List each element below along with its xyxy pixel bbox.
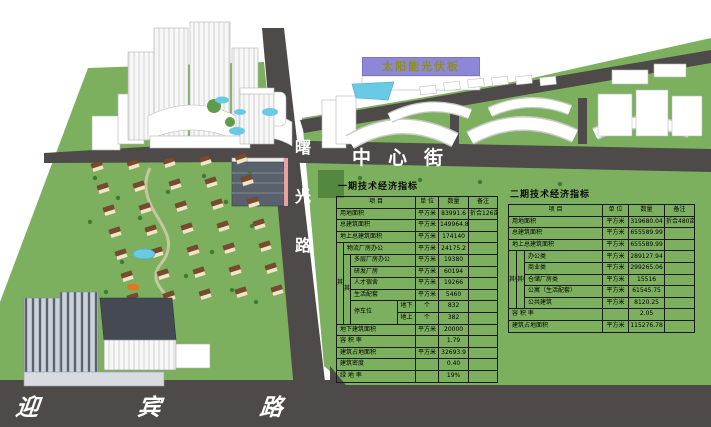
center-street-road-label: 中心街 [352,143,460,170]
indicator-cell [665,239,695,251]
indicator-cell: 2.05 [629,309,665,321]
indicator-cell [469,301,498,313]
indicator-cell: 32693.9 [439,347,469,359]
master-plan-screenshot: { "scene": { "labels": { "center_street"… [0,0,711,427]
indicator-cell: 备注 [665,205,695,217]
indicator-cell [469,347,498,359]
indicator-cell: 单 位 [416,197,439,209]
indicator-cell [469,278,498,290]
indicator-cell: 149964.8 [439,220,469,232]
indicator-cell: 项 目 [509,205,603,217]
indicator-cell [469,243,498,255]
indicator-cell [469,324,498,336]
indicator-cell: 平方米 [416,324,439,336]
indicator-cell: 地下 [398,301,416,313]
indicator-cell: 19380 [439,254,469,266]
indicator-cell: 地上 [398,312,416,324]
indicator-cell: 总建筑面积 [337,220,416,232]
indicator-cell: 平方米 [603,239,629,251]
glass-office-building [232,158,288,206]
indicator-cell [469,220,498,232]
indicator-cell: 其中 [517,251,525,309]
indicator-cell [469,359,498,371]
indicator-cell: 60194 [439,266,469,278]
indicator-cell: 用地面积 [509,216,603,228]
indicator-cell: 319680.04 [629,216,665,228]
indicator-cell: 19% [439,370,469,382]
indicator-cell: 物流厂房办公 [344,243,416,255]
indicator-cell: 24175.2 [439,243,469,255]
indicator-cell: 人才宿舍 [351,278,416,290]
indicator-cell: 单 位 [603,205,629,217]
indicator-cell: 平方米 [416,243,439,255]
indicator-cell: 研发厂房 [351,266,416,278]
indicator-cell [469,312,498,324]
indicator-cell: 平方米 [603,320,629,332]
indicator-cell: 建筑占地面积 [509,320,603,332]
indicator-cell [469,254,498,266]
indicator-cell: 83991.6 [439,208,469,220]
phase2-indicator-table: 项 目单 位数量备注用地面积平方米319680.04折合480亩总建筑面积平方米… [508,204,695,333]
indicator-cell: 平方米 [603,262,629,274]
indicator-cell: 平方米 [416,254,439,266]
indicator-cell: 382 [439,312,469,324]
indicator-cell: 平方米 [603,228,629,240]
indicator-cell [469,336,498,348]
indicator-cell: 其中 [337,243,344,324]
indicator-cell: 数量 [629,205,665,217]
phase1-title: 一期技术经济指标 [338,179,499,192]
indicator-cell: 61545.75 [629,286,665,298]
indicator-cell: 平方米 [416,278,439,290]
indicator-cell: 平方米 [603,251,629,263]
shuguang-road-label: 曙光路 [289,139,313,286]
indicator-cell: 商业类 [525,262,603,274]
indicator-cell: 地上总建筑面积 [509,239,603,251]
indicator-cell: 仓储厂房类 [525,274,603,286]
indicator-cell: 115276.78 [629,320,665,332]
indicator-cell [665,320,695,332]
indicator-cell: 公寓（生活配套） [525,286,603,298]
solar-panel-banner: 太阳能光伏板 [362,57,480,76]
indicator-cell [469,266,498,278]
indicator-cell: 备注 [469,197,498,209]
indicator-cell: 生活配套 [351,289,416,301]
indicator-cell: 平方米 [603,274,629,286]
indicator-cell: 289127.94 [629,251,665,263]
indicator-cell: 174140 [439,231,469,243]
indicator-cell: 832 [439,301,469,313]
indicator-cell: 建筑占地面积 [337,347,416,359]
indicator-cell: 其中 [344,254,351,324]
indicator-cell: 停车位 [351,301,398,324]
indicator-cell: 655589.99 [629,228,665,240]
indicator-cell: 容 积 率 [337,336,416,348]
indicator-cell [665,251,695,263]
indicator-cell [469,370,498,382]
indicator-cell: 容 积 率 [509,309,603,321]
indicator-cell: 公共建筑 [525,297,603,309]
indicator-cell: 总建筑面积 [509,228,603,240]
indicator-cell [665,297,695,309]
indicator-cell: 平方米 [603,286,629,298]
indicator-cell [665,274,695,286]
indicator-cell: 折合480亩 [665,216,695,228]
indicator-cell [469,289,498,301]
indicator-cell: 1.79 [439,336,469,348]
indicator-cell: 15516 [629,274,665,286]
indicator-cell: 平方米 [416,347,439,359]
indicator-cell: 299265.06 [629,262,665,274]
indicator-cell: 个 [416,301,439,313]
estate-pond [133,249,155,259]
indicator-cell: 平方米 [416,266,439,278]
indicator-cell: 个 [416,312,439,324]
indicator-cell [416,336,439,348]
indicator-cell: 平方米 [416,289,439,301]
indicator-cell: 655589.99 [629,239,665,251]
indicator-cell: 折合126亩 [469,208,498,220]
indicator-cell: 建筑密度 [337,359,416,371]
indicator-cell: 其中 [509,251,517,309]
indicator-cell [665,228,695,240]
indicator-cell: 办公类 [525,251,603,263]
indicator-cell: 项 目 [337,197,416,209]
indicator-cell: 0.40 [439,359,469,371]
indicator-cell [603,309,629,321]
phase1-indicator-table: 项 目单 位数量备注用地面积平方米83991.6折合126亩总建筑面积平方米14… [336,196,498,383]
phase2-title: 二期技术经济指标 [510,187,696,200]
indicator-cell: 绿 地 率 [337,370,416,382]
indicator-cell: 20000 [439,324,469,336]
yingbin-road-label: 迎宾路 [14,388,384,422]
indicator-cell [665,309,695,321]
indicator-cell [665,262,695,274]
indicator-cell: 19266 [439,278,469,290]
indicator-cell: 地下建筑面积 [337,324,416,336]
indicator-cell: 地上总建筑面积 [337,231,416,243]
indicator-cell: 平方米 [416,220,439,232]
phase2-indicator-panel: 二期技术经济指标 项 目单 位数量备注用地面积平方米319680.04折合480… [508,187,696,333]
indicator-cell: 8120.25 [629,297,665,309]
indicator-cell [416,359,439,371]
indicator-cell: 用地面积 [337,208,416,220]
indicator-cell [469,231,498,243]
indicator-cell: 平方米 [416,208,439,220]
indicator-cell: 平方米 [603,216,629,228]
indicator-cell [416,370,439,382]
indicator-cell: 数量 [439,197,469,209]
indicator-cell: 平方米 [416,231,439,243]
phase1-indicator-panel: 一期技术经济指标 项 目单 位数量备注用地面积平方米83991.6折合126亩总… [336,179,499,383]
flower-bed [127,284,139,291]
indicator-cell: 多层厂房办公 [351,254,416,266]
indicator-cell: 5460 [439,289,469,301]
indicator-cell: 平方米 [603,297,629,309]
indicator-cell [665,286,695,298]
